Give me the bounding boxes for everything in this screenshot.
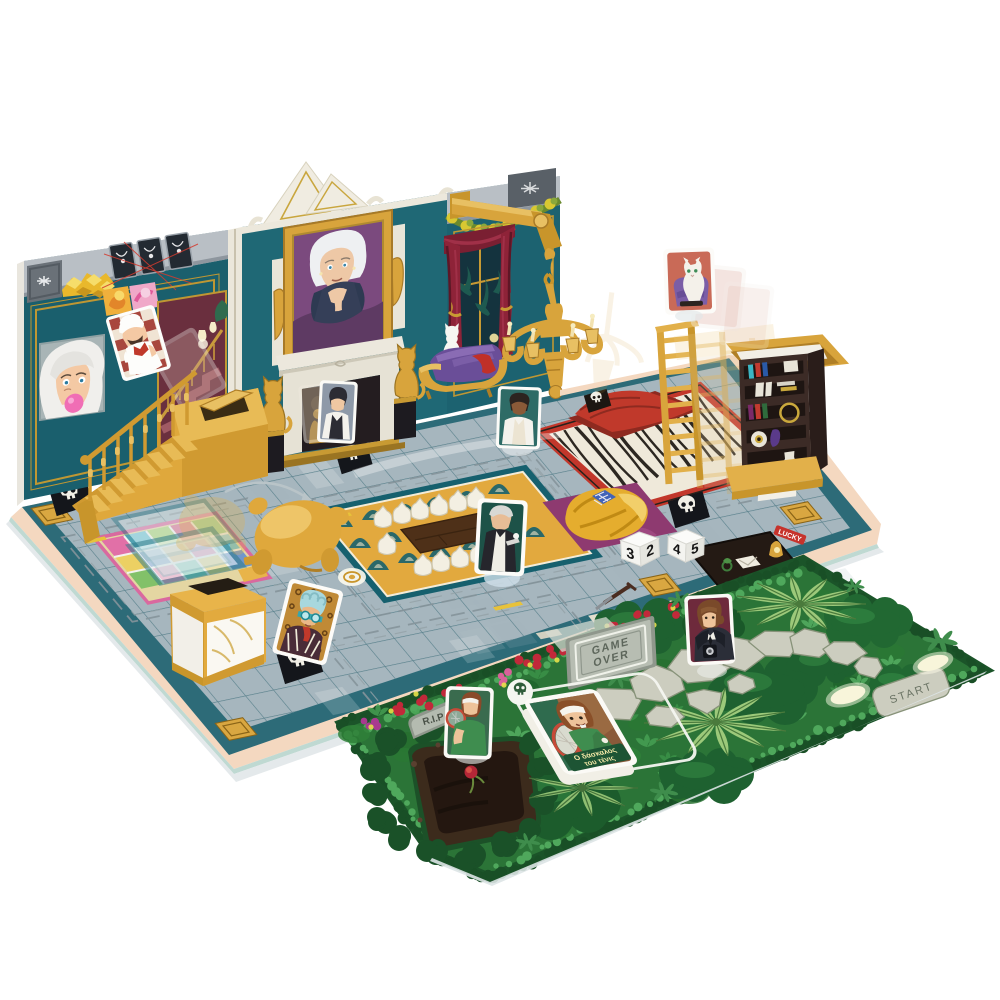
svg-text:2: 2 (646, 541, 655, 561)
svg-text:5: 5 (691, 540, 699, 559)
svg-text:4: 4 (673, 540, 681, 559)
svg-text:3: 3 (626, 544, 635, 564)
